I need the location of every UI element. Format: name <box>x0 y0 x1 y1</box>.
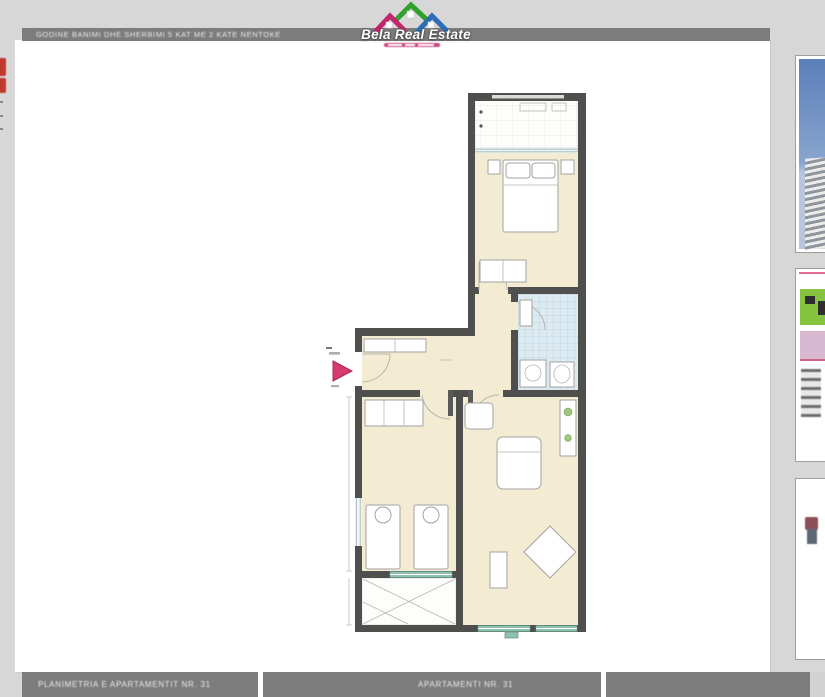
detail-page-thumbnail[interactable] <box>795 478 825 660</box>
thumbnail-accent-line <box>799 272 825 274</box>
thumbnail-lilac-block <box>800 331 825 361</box>
caption-segment-planimetry[interactable]: PLANIMETRIA E APARTAMENTIT NR. 31 <box>22 672 258 697</box>
caption-text: APARTAMENTI NR. 31 <box>418 680 513 689</box>
caption-text: PLANIMETRIA E APARTAMENTIT NR. 31 <box>38 680 211 689</box>
thumbnail-green-block <box>800 289 825 325</box>
brochure-page-thumbnail[interactable] <box>795 268 825 462</box>
caption-segment-apartment[interactable]: APARTAMENTI NR. 31 <box>263 672 601 697</box>
thumbnail-text-marks <box>801 369 821 417</box>
text-fragment <box>0 128 3 130</box>
logo-url-strip <box>384 43 440 47</box>
brand-name: Bela Real Estate <box>360 27 472 42</box>
window-left <box>355 498 362 546</box>
listing-title: GODINE BANIMI DHE SHERBIMI 5 KAT ME 2 KA… <box>22 30 281 39</box>
room-terrace-top <box>475 100 578 148</box>
gallery-caption-bar: PLANIMETRIA E APARTAMENTIT NR. 31 APARTA… <box>22 672 810 697</box>
window-terrace-glass <box>475 148 578 153</box>
red-badge-fragment <box>0 78 6 93</box>
site-logo[interactable]: Bela Real Estate <box>356 0 476 50</box>
entrance-arrow-icon <box>326 347 352 387</box>
thumbnail-figure <box>807 529 817 544</box>
text-fragment <box>0 115 3 117</box>
building-photo-thumbnail[interactable] <box>795 55 825 253</box>
caption-segment-empty[interactable] <box>606 672 810 697</box>
thumbnail-building <box>805 157 825 250</box>
floorplan-image[interactable] <box>320 85 610 650</box>
dimension-lines <box>346 397 352 625</box>
red-badge-fragment <box>0 58 6 76</box>
clipped-red-badge <box>0 55 9 145</box>
text-fragment <box>0 101 3 103</box>
room-terrace-bottom <box>362 578 456 625</box>
scrollbar-corner <box>810 672 825 697</box>
